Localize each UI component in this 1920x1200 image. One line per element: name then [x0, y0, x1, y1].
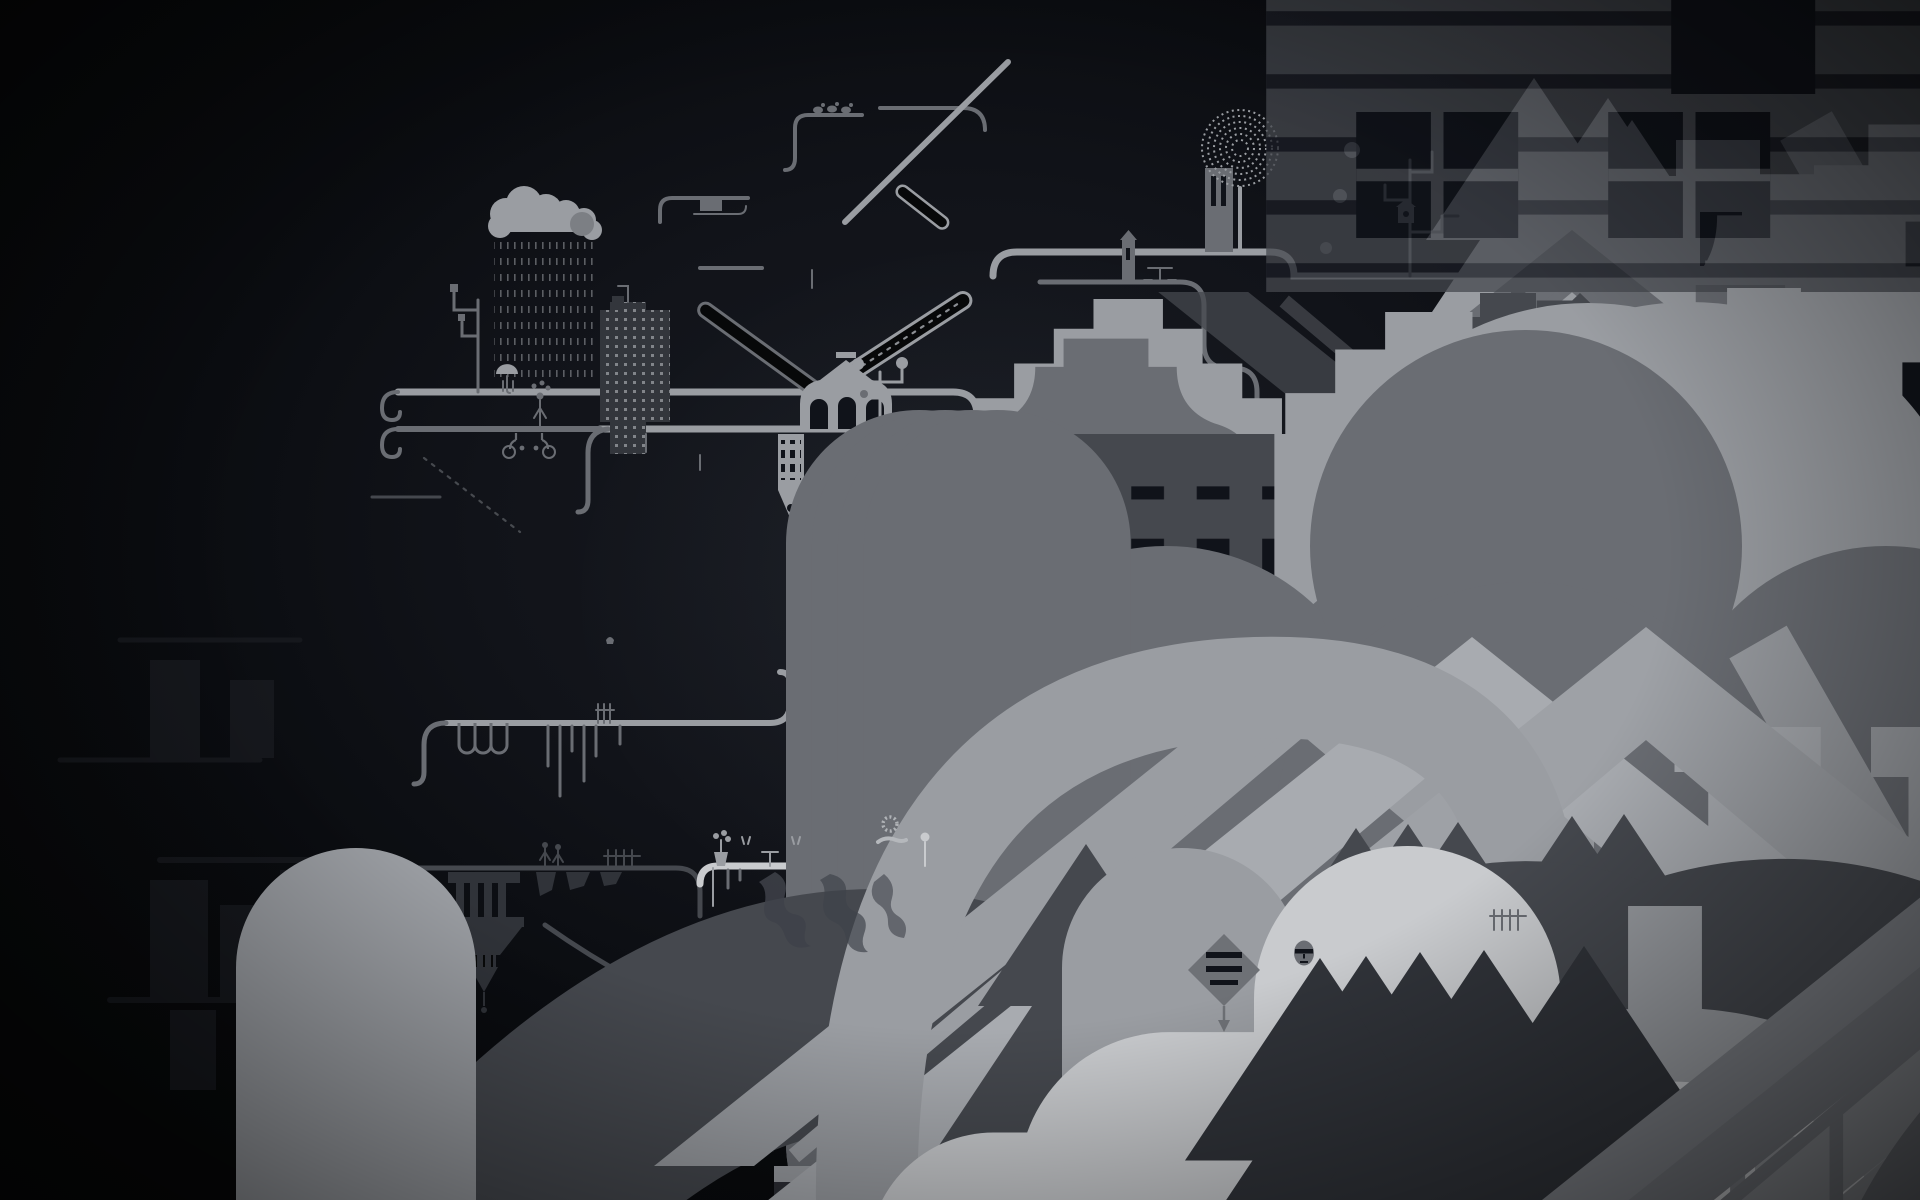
- hanging-rock: [566, 872, 590, 890]
- lamp-tree-icon: [450, 284, 478, 392]
- floor-lamp-icon: [921, 833, 930, 842]
- duck-row: [813, 102, 853, 114]
- drips: [548, 726, 620, 796]
- tier-chalet-row: [446, 672, 790, 723]
- hanging-rock: [600, 872, 622, 886]
- plain-tower: [1205, 168, 1233, 252]
- flower-pot-icon: [713, 830, 731, 866]
- viaduct: [459, 723, 507, 753]
- bell-tower: [1122, 240, 1135, 282]
- top-twigs: [785, 62, 1008, 222]
- face-eyepatch-icon: [1294, 941, 1314, 966]
- hanging-rock: [536, 872, 556, 896]
- roof-cat-icon: [606, 637, 614, 644]
- wallpaper-canvas: AU BONHEUR: [0, 0, 1920, 1200]
- fence: [604, 850, 640, 866]
- rain-cloud-icon: [488, 186, 602, 240]
- picnic-table-icon: [1144, 268, 1176, 280]
- drips: [728, 870, 740, 888]
- log-capsule-small: [894, 183, 950, 231]
- hanging-bicycles: [503, 433, 555, 458]
- log-capsule-cross: [696, 300, 826, 399]
- tree-of-homes-artwork: AU BONHEUR: [0, 0, 1920, 1200]
- rain: [494, 236, 598, 384]
- flower-person-icon: [532, 381, 551, 430]
